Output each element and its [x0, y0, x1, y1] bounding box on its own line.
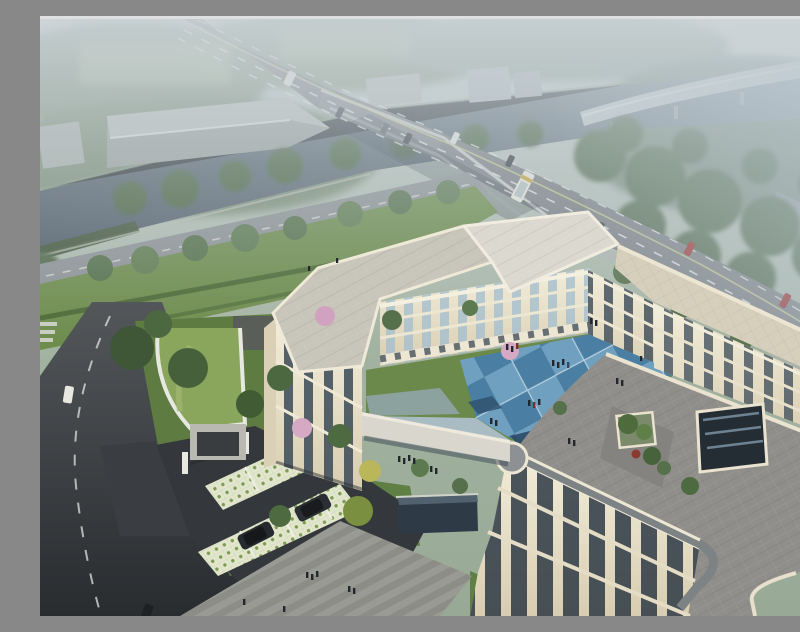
architectural-rendering: Aerial architectural rendering of a thre…: [40, 16, 800, 616]
roof-atrium: [697, 404, 767, 472]
rendering-canvas: [40, 16, 800, 616]
blossom-tree: [315, 306, 335, 326]
blossom-tree: [292, 418, 312, 438]
top-border: [40, 16, 800, 19]
